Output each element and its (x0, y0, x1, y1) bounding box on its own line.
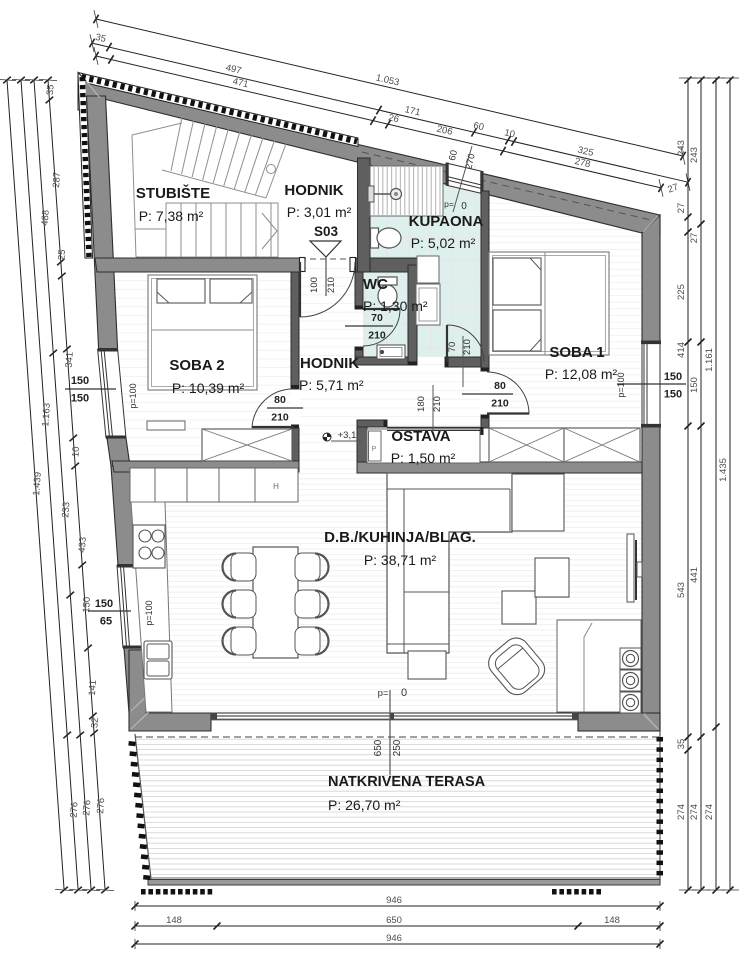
svg-text:32: 32 (89, 717, 101, 728)
svg-text:946: 946 (386, 895, 402, 906)
svg-text:243: 243 (689, 147, 700, 163)
svg-text:0: 0 (461, 201, 467, 212)
svg-text:H: H (273, 482, 279, 491)
svg-text:SOBA 2: SOBA 2 (169, 357, 224, 374)
svg-text:210: 210 (491, 398, 509, 410)
svg-text:100: 100 (309, 277, 320, 293)
svg-text:S03: S03 (314, 224, 339, 239)
svg-text:25: 25 (56, 249, 68, 260)
svg-text:210: 210 (368, 330, 386, 342)
svg-text:148: 148 (604, 915, 620, 926)
svg-text:P: 3,01 m²: P: 3,01 m² (287, 204, 352, 220)
svg-text:650: 650 (373, 739, 384, 756)
svg-text:287: 287 (51, 172, 63, 189)
svg-text:P: P (372, 446, 377, 453)
svg-text:27: 27 (676, 203, 687, 214)
svg-text:276: 276 (81, 800, 93, 817)
svg-text:441: 441 (689, 567, 700, 583)
svg-text:150: 150 (95, 598, 113, 610)
svg-text:NATKRIVENA TERASA: NATKRIVENA TERASA (328, 774, 486, 790)
svg-text:70: 70 (371, 312, 383, 324)
svg-text:P: 5,02 m²: P: 5,02 m² (411, 235, 476, 251)
svg-text:150: 150 (689, 377, 700, 393)
svg-text:243: 243 (676, 140, 687, 156)
svg-text:274: 274 (676, 804, 687, 820)
svg-text:274: 274 (704, 804, 715, 820)
svg-text:150: 150 (71, 375, 89, 387)
svg-text:180: 180 (416, 396, 427, 412)
svg-text:1.439: 1.439 (31, 472, 44, 496)
svg-text:P: 38,71 m²: P: 38,71 m² (364, 552, 437, 568)
svg-text:1.163: 1.163 (40, 403, 53, 427)
svg-text:+3,1: +3,1 (338, 430, 357, 441)
svg-text:543: 543 (676, 582, 687, 598)
svg-text:250: 250 (392, 739, 403, 756)
svg-text:KUPAONA: KUPAONA (409, 213, 484, 230)
svg-text:65: 65 (100, 616, 112, 628)
svg-text:488: 488 (40, 210, 52, 227)
svg-text:P: 26,70 m²: P: 26,70 m² (328, 797, 401, 813)
svg-text:0: 0 (401, 687, 407, 699)
svg-text:P: 5,71 m²: P: 5,71 m² (299, 377, 364, 393)
svg-text:P: 7,38 m²: P: 7,38 m² (139, 208, 204, 224)
svg-text:HODNIK: HODNIK (284, 182, 343, 199)
svg-text:27: 27 (689, 233, 700, 244)
svg-text:70: 70 (447, 342, 458, 353)
svg-text:150: 150 (71, 393, 89, 405)
svg-text:SOBA 1: SOBA 1 (549, 344, 604, 361)
svg-text:80: 80 (274, 394, 286, 406)
svg-text:10: 10 (70, 446, 82, 457)
svg-text:148: 148 (166, 915, 182, 926)
svg-text:p=100: p=100 (128, 383, 138, 408)
svg-text:233: 233 (60, 502, 72, 519)
svg-text:210: 210 (462, 339, 473, 355)
svg-text:80: 80 (494, 380, 506, 392)
svg-text:150: 150 (664, 371, 682, 383)
svg-text:1.161: 1.161 (704, 348, 715, 372)
svg-text:OSTAVA: OSTAVA (391, 428, 450, 445)
svg-text:35: 35 (676, 739, 687, 750)
svg-text:433: 433 (77, 537, 89, 554)
svg-text:WC: WC (363, 276, 388, 293)
svg-text:p=100: p=100 (616, 372, 626, 397)
svg-text:210: 210 (432, 396, 443, 412)
svg-text:414: 414 (676, 342, 687, 358)
svg-text:225: 225 (676, 284, 687, 300)
svg-text:150: 150 (81, 597, 93, 614)
svg-text:141: 141 (87, 680, 99, 697)
svg-text:p=: p= (378, 688, 389, 699)
svg-text:650: 650 (386, 915, 402, 926)
svg-text:HODNIK: HODNIK (300, 355, 359, 372)
svg-text:946: 946 (386, 933, 402, 944)
svg-text:P: 10,39 m²: P: 10,39 m² (172, 380, 245, 396)
svg-text:35: 35 (45, 84, 57, 95)
svg-text:STUBIŠTE: STUBIŠTE (136, 184, 210, 202)
svg-text:274: 274 (689, 804, 700, 820)
svg-text:p=100: p=100 (144, 600, 154, 625)
svg-text:210: 210 (326, 277, 337, 293)
svg-text:150: 150 (664, 389, 682, 401)
svg-text:276: 276 (68, 802, 80, 819)
svg-text:D.B./KUHINJA/BLAG.: D.B./KUHINJA/BLAG. (324, 529, 476, 546)
svg-text:P: 12,08 m²: P: 12,08 m² (545, 366, 618, 382)
svg-text:p=: p= (444, 199, 454, 209)
svg-text:1.435: 1.435 (718, 458, 729, 482)
svg-text:341: 341 (64, 352, 76, 369)
svg-text:210: 210 (271, 412, 289, 424)
svg-text:P: 1,50 m²: P: 1,50 m² (391, 450, 456, 466)
svg-text:276: 276 (95, 798, 107, 815)
